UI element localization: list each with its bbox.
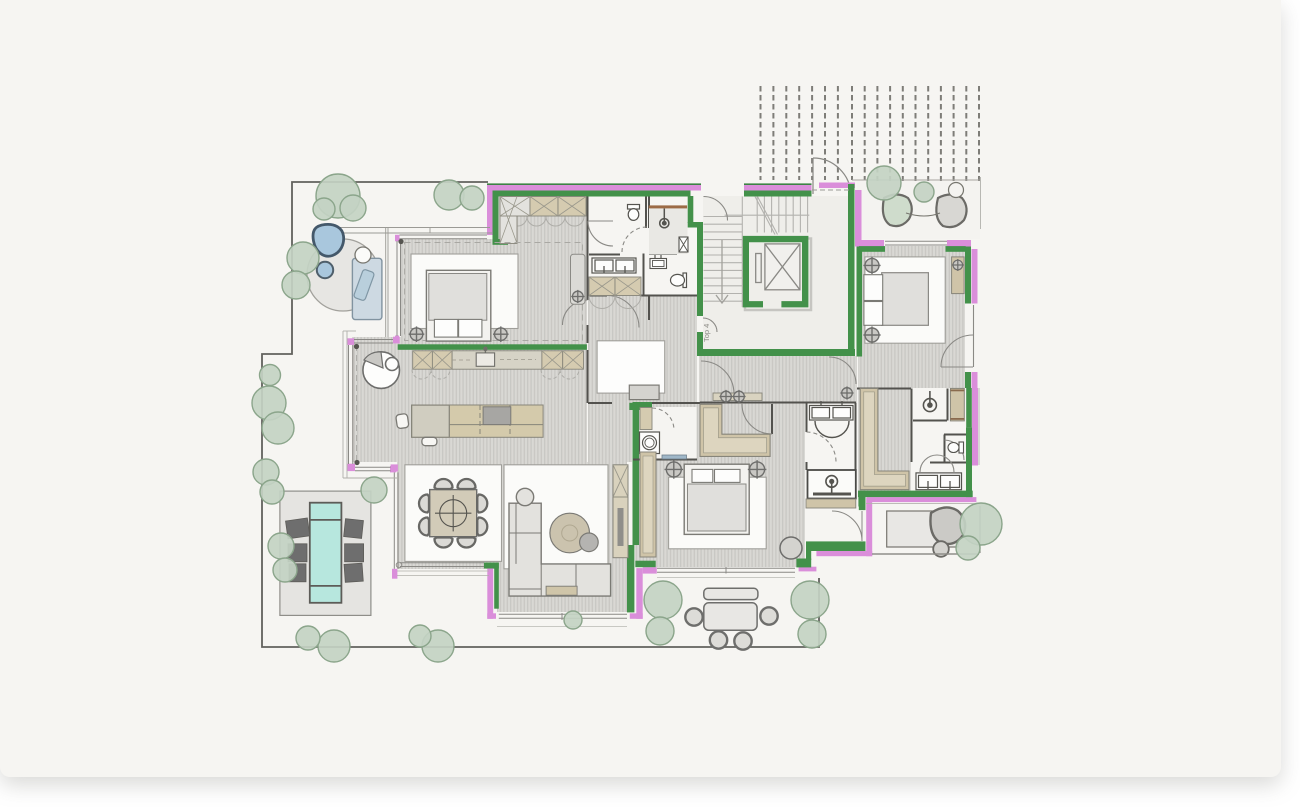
svg-text:Top 4: Top 4 <box>702 324 711 342</box>
